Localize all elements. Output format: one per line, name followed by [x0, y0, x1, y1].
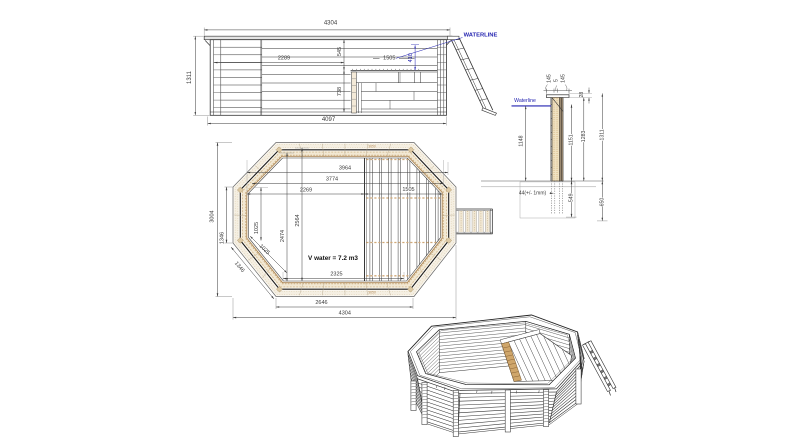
svg-text:1505: 1505: [383, 56, 395, 62]
svg-text:3004: 3004: [209, 210, 215, 222]
svg-text:WATERLINE: WATERLINE: [464, 32, 498, 38]
svg-text:Waterline: Waterline: [514, 98, 536, 104]
svg-text:545: 545: [337, 47, 343, 56]
svg-text:1148: 1148: [518, 135, 524, 146]
svg-text:44(+/- 1mm): 44(+/- 1mm): [519, 191, 547, 197]
svg-text:1311: 1311: [599, 129, 605, 140]
svg-text:1311: 1311: [187, 70, 193, 84]
svg-text:4304: 4304: [324, 20, 338, 26]
svg-text:2474: 2474: [280, 230, 286, 242]
svg-text:145: 145: [561, 74, 567, 83]
svg-text:4097: 4097: [322, 117, 336, 123]
svg-text:2325: 2325: [330, 271, 342, 277]
svg-text:1025: 1025: [254, 222, 260, 234]
svg-text:2289: 2289: [278, 56, 290, 62]
svg-text:3650: 3650: [368, 145, 376, 149]
svg-text:1505: 1505: [402, 187, 414, 193]
svg-text:V water = 7.2 m3: V water = 7.2 m3: [308, 255, 358, 262]
svg-text:4304: 4304: [339, 310, 351, 316]
svg-text:738: 738: [337, 87, 343, 96]
svg-text:1283: 1283: [581, 131, 587, 143]
svg-text:650: 650: [599, 198, 605, 207]
svg-text:2269: 2269: [300, 187, 312, 193]
svg-text:145: 145: [547, 74, 553, 83]
svg-text:549: 549: [569, 193, 575, 202]
svg-text:3650: 3650: [368, 291, 376, 295]
svg-text:1346: 1346: [219, 232, 225, 244]
svg-text:1151: 1151: [569, 134, 575, 145]
svg-text:5: 5: [554, 79, 560, 82]
svg-text:2646: 2646: [315, 300, 327, 306]
svg-text:2564: 2564: [295, 214, 301, 226]
svg-text:28: 28: [579, 92, 585, 98]
svg-text:3964: 3964: [339, 165, 351, 171]
svg-text:3774: 3774: [326, 177, 338, 183]
svg-text:410: 410: [408, 53, 414, 62]
